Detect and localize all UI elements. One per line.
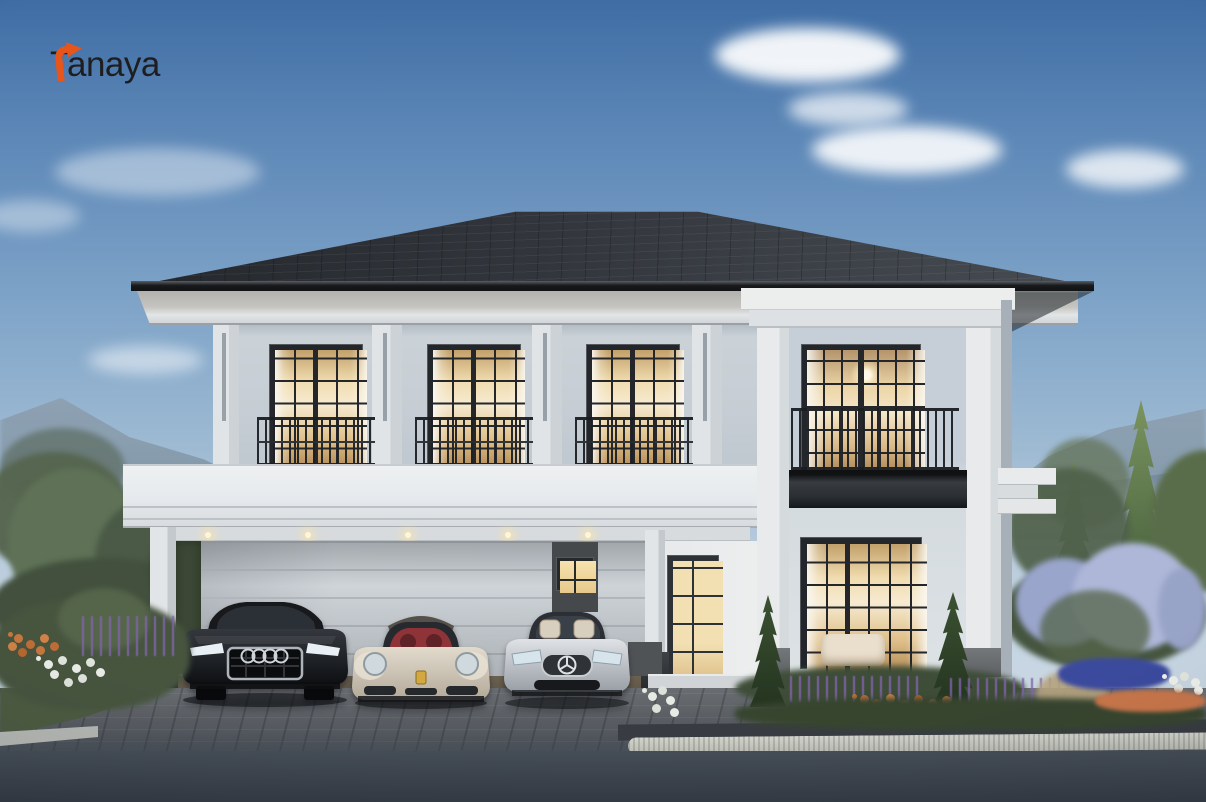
downlight [205,532,211,538]
pilaster [692,325,722,470]
intake-center [405,688,437,695]
window-glass [807,544,927,674]
railing-mid-rail [257,441,375,443]
pilaster [532,325,562,470]
orange-flowers-right [1095,690,1206,712]
downlight [405,532,411,538]
sofa-silhouette [821,634,885,666]
tower-cornice-lower [749,310,1007,328]
white-flowers-steps [642,688,647,693]
side-ledge [998,485,1038,499]
blue-flowers [1058,658,1170,690]
asphalt-road [0,751,1206,802]
red-interior [390,628,452,650]
lilac-bush [1158,568,1206,650]
car-convertible-mercedes [500,608,634,710]
seat-right [574,620,594,638]
living-room-window [801,538,921,668]
porsche-crest-icon [416,671,426,684]
rendering-canvas: Tanaya [0,0,1206,802]
cloud [55,148,260,196]
tower-pilaster-right [966,328,1001,677]
car-suv-audi [176,596,354,708]
side-ledge [998,499,1056,514]
cloud [788,92,908,126]
tower-cornice-upper [741,288,1015,310]
white-flowers-right [1162,674,1167,679]
purple-flowers-left [82,616,178,656]
side-ledge [998,468,1056,485]
suv-lower-trim [190,682,340,689]
railing-mid-rail [415,441,533,443]
suv-hood-highlight [194,636,336,644]
cloud [715,28,900,82]
pilaster-groove [543,333,547,421]
tower-inter-floor-band [789,470,967,508]
headlight-left [364,653,386,675]
pilaster-groove [703,333,707,421]
front-door [668,556,718,674]
pilaster-groove [383,333,387,421]
downlight [305,532,311,538]
downlight [585,532,591,538]
carport-parapet-band [123,464,773,528]
carport-column-right [645,530,665,655]
tower-balcony-railing [791,408,959,470]
headlight-right [456,653,478,675]
white-flowers-left [36,656,41,661]
pilaster-groove [222,333,226,421]
downlight [505,532,511,538]
cloud [1066,150,1184,188]
car-shadow [505,697,629,709]
juliet-balcony-railing [415,417,533,466]
window-glass [560,561,596,593]
pilaster [213,325,239,470]
front-lip [358,696,484,702]
juliet-balcony-railing [575,417,693,466]
door-glass [673,561,723,679]
front-lip [512,690,622,696]
railing-mid-rail [575,441,693,443]
intake-right [446,686,478,695]
juliet-balcony-railing [257,417,375,466]
orange-flowers-left [8,632,13,637]
intake-left [364,686,396,695]
parapet-groove [123,506,773,508]
cloud [812,126,1002,174]
lower-grille [534,680,600,690]
cloud [88,346,203,374]
pilaster [372,325,402,470]
door-side-window [557,558,593,590]
seat-left [540,620,560,638]
turn-right-arrow-icon [52,42,82,82]
parapet-groove [123,518,773,520]
car-sports-porsche [348,614,494,710]
